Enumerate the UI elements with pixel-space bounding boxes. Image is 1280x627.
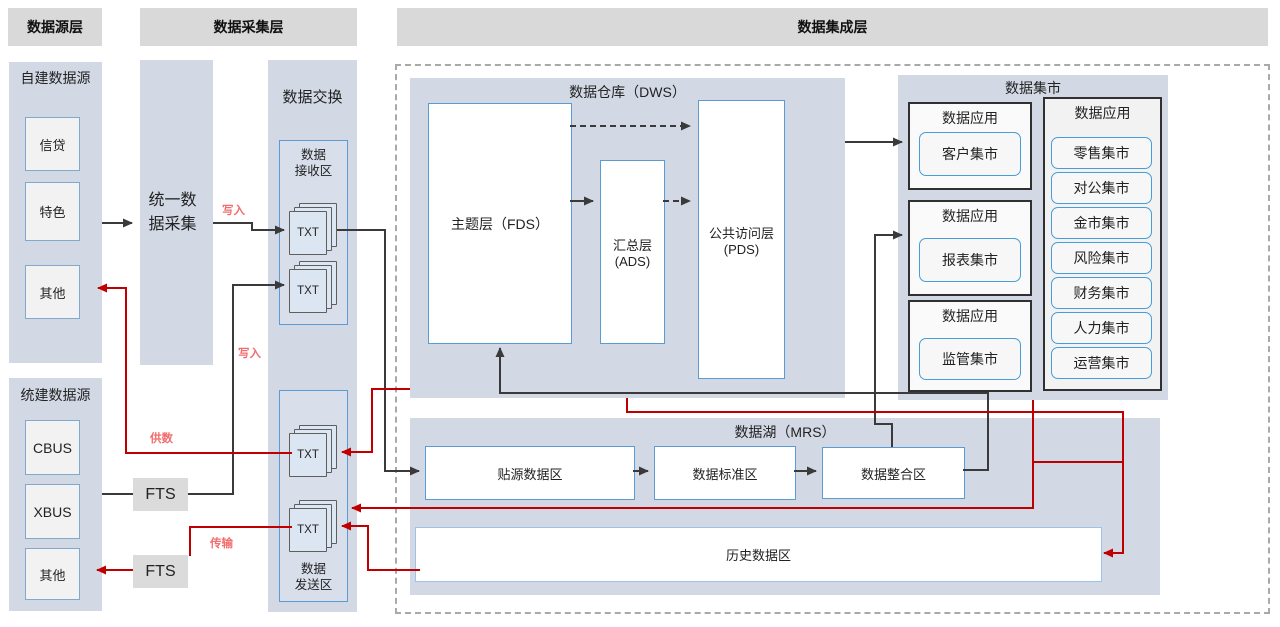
mart-item-customer: 客户集市 — [919, 132, 1021, 176]
mart-group-report: 数据应用 报表集市 — [908, 200, 1032, 296]
source-node-other-self: 其他 — [25, 265, 80, 319]
source-node-special: 特色 — [25, 182, 80, 241]
txt-page-front-icon: TXT — [289, 269, 327, 313]
send-txt-file-1: TXT — [289, 425, 337, 477]
source-node-other-unified: 其他 — [25, 548, 80, 600]
unified-built-source-title: 统建数据源 — [9, 385, 102, 405]
self-built-source-title: 自建数据源 — [9, 68, 102, 88]
mart-apps-box: 数据应用 零售集市 对公集市 金市集市 风险集市 财务集市 人力集市 运营集市 — [1043, 97, 1162, 391]
mart-item-report: 报表集市 — [919, 238, 1021, 282]
mart-group-regulatory: 数据应用 监管集市 — [908, 300, 1032, 392]
mart-group-title: 数据应用 — [910, 206, 1030, 226]
unified-data-collection-label: 统一数据采集 — [149, 189, 205, 237]
fds-subject-layer: 主题层（FDS） — [428, 103, 572, 344]
mart-item-corporate: 对公集市 — [1051, 172, 1152, 204]
txt-page-front-icon: TXT — [289, 508, 327, 552]
lake-zone-integration: 数据整合区 — [822, 447, 965, 499]
data-send-zone: 数据 发送区 — [279, 390, 348, 602]
flow-label-write-bottom: 写入 — [238, 345, 261, 361]
flow-label-transfer: 传输 — [210, 535, 233, 551]
data-warehouse-title: 数据仓库（DWS） — [410, 82, 845, 102]
flow-label-write-top: 写入 — [222, 202, 245, 218]
mart-item-operations: 运营集市 — [1051, 347, 1152, 379]
txt-page-front-icon: TXT — [289, 433, 327, 477]
mart-group-customer: 数据应用 客户集市 — [908, 102, 1032, 190]
txt-page-front-icon: TXT — [289, 211, 327, 255]
pds-public-access-layer: 公共访问层 (PDS) — [698, 100, 785, 379]
source-node-credit: 信贷 — [25, 117, 80, 171]
ads-label-line1: 汇总层 — [613, 235, 652, 254]
ads-label-line2: (ADS) — [613, 254, 652, 269]
header-data-source-layer: 数据源层 — [8, 8, 102, 46]
receive-txt-file-2: TXT — [289, 261, 337, 313]
lake-zone-source-paste: 贴源数据区 — [425, 446, 635, 500]
flow-label-supply: 供数 — [150, 430, 173, 446]
data-mart-title: 数据集市 — [898, 78, 1168, 98]
mart-group-title: 数据应用 — [910, 108, 1030, 128]
mart-apps-title: 数据应用 — [1045, 103, 1160, 123]
data-exchange-title: 数据交换 — [268, 86, 357, 107]
mart-item-gold: 金市集市 — [1051, 207, 1152, 239]
architecture-diagram: 数据源层 数据采集层 数据集成层 自建数据源 信贷 特色 其他 统建数据源 CB… — [0, 0, 1280, 627]
ads-summary-layer: 汇总层 (ADS) — [600, 160, 665, 344]
history-data-zone: 历史数据区 — [415, 527, 1102, 582]
receive-zone-title-line1: 数据 — [280, 147, 347, 163]
unified-data-collection-node: 统一数据采集 — [140, 60, 213, 365]
mart-item-regulatory: 监管集市 — [919, 338, 1021, 380]
send-zone-title-line1: 数据 — [280, 561, 347, 577]
source-node-cbus: CBUS — [25, 420, 80, 475]
data-lake-title: 数据湖（MRS） — [410, 422, 1160, 442]
send-txt-file-2: TXT — [289, 500, 337, 552]
fts-node-bottom: FTS — [133, 555, 188, 588]
header-data-integration-layer: 数据集成层 — [397, 8, 1268, 46]
mart-item-hr: 人力集市 — [1051, 312, 1152, 344]
pds-label-line1: 公共访问层 — [709, 223, 774, 242]
lake-zone-standard: 数据标准区 — [654, 446, 796, 500]
source-node-xbus: XBUS — [25, 484, 80, 539]
pds-label-line2: (PDS) — [709, 242, 774, 257]
mart-item-finance: 财务集市 — [1051, 277, 1152, 309]
receive-txt-file-1: TXT — [289, 203, 337, 255]
mart-item-retail: 零售集市 — [1051, 137, 1152, 169]
receive-zone-title-line2: 接收区 — [280, 163, 347, 179]
mart-item-risk: 风险集市 — [1051, 242, 1152, 274]
send-zone-title-line2: 发送区 — [280, 577, 347, 593]
header-data-collection-layer: 数据采集层 — [140, 8, 357, 46]
fts-node-top: FTS — [133, 478, 188, 511]
mart-group-title: 数据应用 — [910, 306, 1030, 326]
